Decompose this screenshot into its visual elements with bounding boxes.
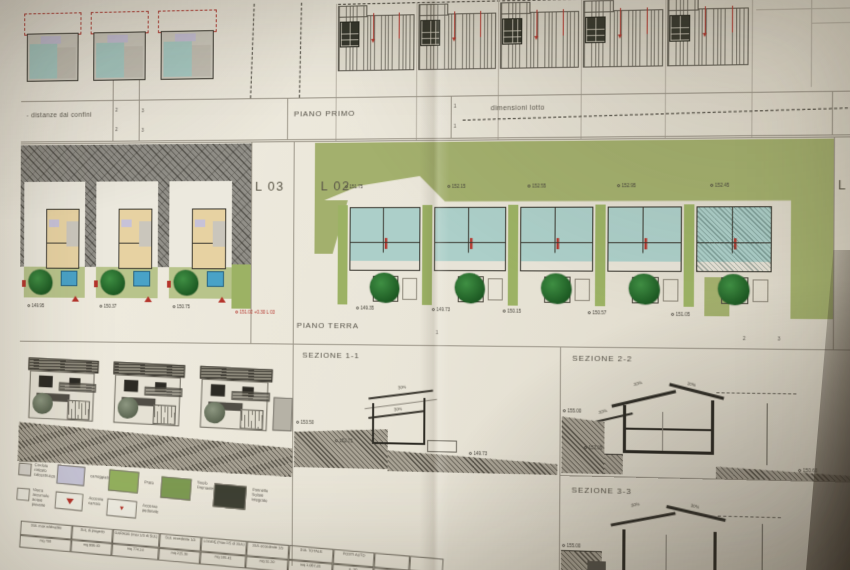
benchmark-icon xyxy=(27,304,30,307)
elevation-marker: 150.37 xyxy=(99,304,116,309)
grid-line xyxy=(580,0,581,139)
roof-slope-arrowhead-icon xyxy=(534,36,538,40)
section-slab xyxy=(625,428,712,431)
grid-line xyxy=(665,0,666,138)
roof-slope-label: 30% xyxy=(393,406,402,412)
elevation-marker-red: 151.02 +0.30 L 03 xyxy=(235,310,275,315)
legend-swatch-cordolo xyxy=(18,463,32,477)
access-triangle-icon xyxy=(66,498,74,505)
tree-icon xyxy=(28,270,52,295)
street-elevation-view xyxy=(17,346,296,479)
solar-panel-icon xyxy=(420,20,440,46)
elevation-marker: 150.57 xyxy=(588,310,607,315)
tree-icon xyxy=(455,273,485,303)
benchmark-icon xyxy=(432,308,435,311)
sheet-content: - distanze dai confini 2 3 2 3 PIANO PRI… xyxy=(19,0,850,570)
roof-slope-arrow-icon xyxy=(536,10,537,36)
benchmark-icon xyxy=(469,452,472,455)
legend-swatch-vasca xyxy=(16,487,30,501)
legend-label: Cordolo rialzato calcestruzzo xyxy=(34,463,59,480)
roof-slope-label: 30% xyxy=(690,503,700,510)
pool-icon xyxy=(133,271,150,287)
plan-room-gray xyxy=(192,45,211,77)
roof-slope-arrowhead-icon xyxy=(618,34,622,38)
roof-slope-arrow-icon xyxy=(732,6,733,33)
drawing-sheet: - distanze dai confini 2 3 2 3 PIANO PRI… xyxy=(0,0,850,570)
roof-plan-unit xyxy=(500,1,579,69)
benchmark-icon xyxy=(562,544,565,547)
plan-room-gray xyxy=(57,47,76,78)
roof-slope-arrow-icon xyxy=(399,13,400,39)
caption-dimensioni-lotto: dimensioni lotto xyxy=(491,105,545,113)
grid-tick: 3 xyxy=(141,128,143,133)
section-roof-line xyxy=(611,390,676,408)
benchmark-icon xyxy=(296,421,299,424)
tree-icon xyxy=(718,274,750,305)
boundary-dashed-line xyxy=(250,4,255,98)
ground-hatch xyxy=(388,445,558,475)
parking-frame xyxy=(402,278,417,300)
lot-label-l03-left: L 03 xyxy=(255,179,285,194)
solar-panel-icon xyxy=(669,15,690,42)
floor-plan-thumb xyxy=(161,30,214,80)
lot-green-area xyxy=(790,199,833,319)
elevation-marker: 152.45 xyxy=(710,183,729,188)
plan-room-lavender xyxy=(107,35,128,43)
roof-plan-unit xyxy=(583,0,663,68)
roof-slope-arrow-icon xyxy=(705,6,706,33)
porch-roof xyxy=(59,382,96,393)
ridge-level-dashed-line xyxy=(718,516,781,519)
building-plan-teal xyxy=(434,207,506,271)
roof-plan-unit xyxy=(338,4,415,71)
legend-swatch-carreggiata xyxy=(56,464,85,486)
roof-step xyxy=(667,0,698,11)
hedge-strip xyxy=(338,205,348,304)
access-triangle-icon xyxy=(120,506,124,510)
benchmark-icon xyxy=(173,305,176,308)
benchmark-icon xyxy=(335,439,338,442)
grid-tick: 3 xyxy=(142,108,144,113)
panel-border xyxy=(20,341,850,351)
diagonal-hatch-overlay xyxy=(697,207,771,271)
benchmark-icon xyxy=(563,409,566,412)
grid-line xyxy=(451,96,452,138)
grid-line xyxy=(139,80,140,140)
roof-slope-arrow-icon xyxy=(620,8,621,35)
benchmark-icon xyxy=(527,184,530,187)
tree-icon xyxy=(541,273,572,304)
roof-plan-unit xyxy=(667,0,749,66)
building-plan-teal xyxy=(520,207,593,272)
benchmark-icon xyxy=(100,305,103,308)
benchmark-icon xyxy=(617,184,620,187)
solar-panel-icon xyxy=(340,21,360,47)
access-triangle-icon xyxy=(72,296,79,302)
section-slab xyxy=(623,450,714,455)
hedge-strip xyxy=(684,204,695,307)
legend-label: Pannello Solare integrato xyxy=(251,488,273,505)
ridge-level-dashed-line xyxy=(716,392,796,394)
roof-step xyxy=(583,0,614,13)
plan-room-teal xyxy=(163,41,192,77)
legend-swatch-suolo-drenante xyxy=(160,476,192,500)
elevation-marker: 149.73 xyxy=(469,451,487,456)
section-wall xyxy=(713,532,716,570)
benchmark-icon xyxy=(798,469,801,472)
roof-step xyxy=(419,4,449,17)
tree-icon xyxy=(174,270,199,296)
neighbor-wall xyxy=(587,561,605,570)
solar-panel-icon xyxy=(585,16,606,43)
roof-slope-arrow-icon xyxy=(373,13,374,39)
building-plan-teal xyxy=(696,206,772,272)
grid-line xyxy=(756,7,850,10)
neighbor-building xyxy=(272,397,293,432)
grid-tick: 2 xyxy=(115,108,117,113)
legend-label: Vasca accumulo acque piovane xyxy=(32,488,57,509)
roof-slope-label: 30% xyxy=(630,501,640,508)
section-inner-line xyxy=(665,535,666,570)
tree-icon xyxy=(370,273,400,303)
section-wall xyxy=(622,529,625,570)
roof-slope-arrow-icon xyxy=(454,11,455,37)
grid-line xyxy=(832,91,833,135)
hedge-strip xyxy=(508,205,519,306)
garage-door xyxy=(153,404,176,425)
table-header-cell xyxy=(409,556,444,570)
benchmark-icon xyxy=(235,310,238,313)
section-roof-line xyxy=(611,512,676,527)
floor-plan-thumb xyxy=(27,33,79,82)
grid-line xyxy=(416,2,417,140)
roof-step xyxy=(338,5,367,18)
grid-line xyxy=(811,22,850,24)
roof-slope-arrowhead-icon xyxy=(371,39,375,43)
boundary-dashed-line xyxy=(299,3,302,98)
section-wall xyxy=(372,403,374,443)
benchmark-icon xyxy=(345,185,348,188)
elevation-marker: 149.35 xyxy=(356,306,374,311)
legend-swatch-prato xyxy=(108,469,139,493)
parking-frame xyxy=(753,279,769,302)
tree-icon xyxy=(100,270,124,295)
table-value-cell: mq 999.40 xyxy=(71,540,113,556)
section-inner-line xyxy=(662,412,663,451)
caption-piano-primo: PIANO PRIMO xyxy=(294,109,355,119)
access-triangle-icon xyxy=(218,297,226,303)
legend-swatch-pannello-solare xyxy=(213,483,247,510)
grid-tick: 1 xyxy=(454,104,457,109)
grid-tick: 2 xyxy=(743,336,746,341)
garage-door xyxy=(67,400,90,421)
benchmark-icon xyxy=(503,309,506,312)
roof-slope-arrowhead-icon xyxy=(703,33,707,37)
caption-distanze-confini: - distanze dai confini xyxy=(27,112,92,119)
grid-line xyxy=(112,81,113,141)
roof-slope-label: 30% xyxy=(633,380,643,387)
elevation-marker: 153.50 xyxy=(296,420,314,425)
tree-icon xyxy=(629,274,660,305)
ground-hatch xyxy=(716,462,850,482)
roof-slope-arrow-icon xyxy=(647,7,648,34)
legend-swatch-accesso-carraio xyxy=(55,491,84,511)
floor-plan-thumb xyxy=(93,31,146,80)
photo-of-architectural-plan: - distanze dai confini 2 3 2 3 PIANO PRI… xyxy=(0,0,850,570)
section-wall xyxy=(711,400,714,453)
caption-piano-terra: PIANO TERRA xyxy=(297,321,359,330)
grid-tick: 3 xyxy=(778,336,781,341)
legend-label: Accesso pedonale xyxy=(142,504,163,516)
panel-border xyxy=(287,98,288,139)
access-marker-icon xyxy=(22,280,26,287)
dimension-line xyxy=(762,524,763,570)
elevation-marker: 152.05 xyxy=(584,445,603,450)
benchmark-icon xyxy=(671,313,674,316)
roof-plan-unit xyxy=(418,2,496,70)
panel-border xyxy=(293,141,295,343)
garden-strip xyxy=(231,264,250,308)
grid-line xyxy=(811,0,812,87)
grid-tick: 2 xyxy=(115,127,117,132)
solar-panel-icon xyxy=(502,18,522,45)
elevation-marker: 152.75 xyxy=(335,438,353,443)
plan-room-lavender xyxy=(175,33,196,41)
panel-border xyxy=(559,346,561,570)
benchmark-icon xyxy=(356,306,359,309)
roof-step xyxy=(500,2,530,15)
plan-room-gray xyxy=(124,46,143,77)
benchmark-icon xyxy=(588,311,591,314)
elevation-marker: 152.55 xyxy=(527,183,546,188)
legend-swatch-accesso-pedonale xyxy=(106,498,137,518)
table-value-cell: mq 225.16 xyxy=(158,548,200,564)
elevation-marker: 151.75 xyxy=(345,184,363,189)
section-wall xyxy=(423,398,425,444)
hedge-strip xyxy=(422,205,432,305)
parking-frame xyxy=(488,278,503,300)
elevation-marker: 155.00 xyxy=(563,408,582,413)
plan-room-teal xyxy=(96,42,124,77)
access-marker-icon xyxy=(94,280,98,287)
building-plan-tan xyxy=(192,208,227,269)
elevation-marker: 149.73 xyxy=(432,307,450,312)
grid-tick: 1 xyxy=(454,124,457,129)
ground-hatch xyxy=(604,454,623,475)
building-plan-teal xyxy=(349,207,420,271)
plan-room-teal xyxy=(29,44,57,79)
benchmark-icon xyxy=(584,446,587,449)
lot-label-l03-right: L 03 xyxy=(838,177,850,193)
roof-slope-arrowhead-icon xyxy=(452,37,456,41)
grid-line xyxy=(335,4,336,141)
pool-icon xyxy=(207,271,224,287)
elevation-marker: 150.75 xyxy=(173,304,190,309)
lot-green-area xyxy=(315,139,834,205)
dimension-line xyxy=(766,403,767,465)
section-1-title: SEZIONE 1-1 xyxy=(302,351,359,361)
benchmark-icon xyxy=(447,185,450,188)
porch-roof xyxy=(144,386,182,397)
roof-slope-label: 30% xyxy=(398,384,407,390)
retaining-wall xyxy=(427,440,457,453)
hedge-strip xyxy=(595,205,606,307)
plan-room-lavender xyxy=(41,36,61,44)
elevation-marker: 149.95 xyxy=(27,303,44,308)
elevation-marker: 150.15 xyxy=(503,309,522,314)
elevation-marker: 155.00 xyxy=(562,543,581,549)
section-2-title: SEZIONE 2-2 xyxy=(572,354,632,364)
panel-border xyxy=(21,90,850,101)
parking-frame xyxy=(663,279,679,302)
access-triangle-icon xyxy=(144,296,152,302)
elevation-marker: 152.15 xyxy=(447,184,465,189)
grid-tick: 1 xyxy=(436,330,439,335)
elevation-marker: 152.95 xyxy=(617,183,636,188)
elevation-marker: 151.05 xyxy=(671,312,690,317)
building-plan-teal xyxy=(607,206,682,272)
building-plan-tan xyxy=(118,209,152,269)
roof-slope-label: 30% xyxy=(598,408,608,415)
building-plan-tan xyxy=(46,209,80,269)
elevation-marker: 150.60 xyxy=(798,468,818,474)
benchmark-icon xyxy=(710,184,713,187)
section-3-title: SEZIONE 3-3 xyxy=(571,485,631,496)
parking-frame xyxy=(575,279,590,301)
roof-slope-arrow-icon xyxy=(480,11,481,37)
grid-line xyxy=(751,0,752,137)
roof-slope-arrow-icon xyxy=(563,9,564,35)
access-marker-icon xyxy=(167,281,171,288)
pool-icon xyxy=(61,271,78,287)
ground-hatch xyxy=(294,426,388,470)
garage-door xyxy=(240,409,264,430)
